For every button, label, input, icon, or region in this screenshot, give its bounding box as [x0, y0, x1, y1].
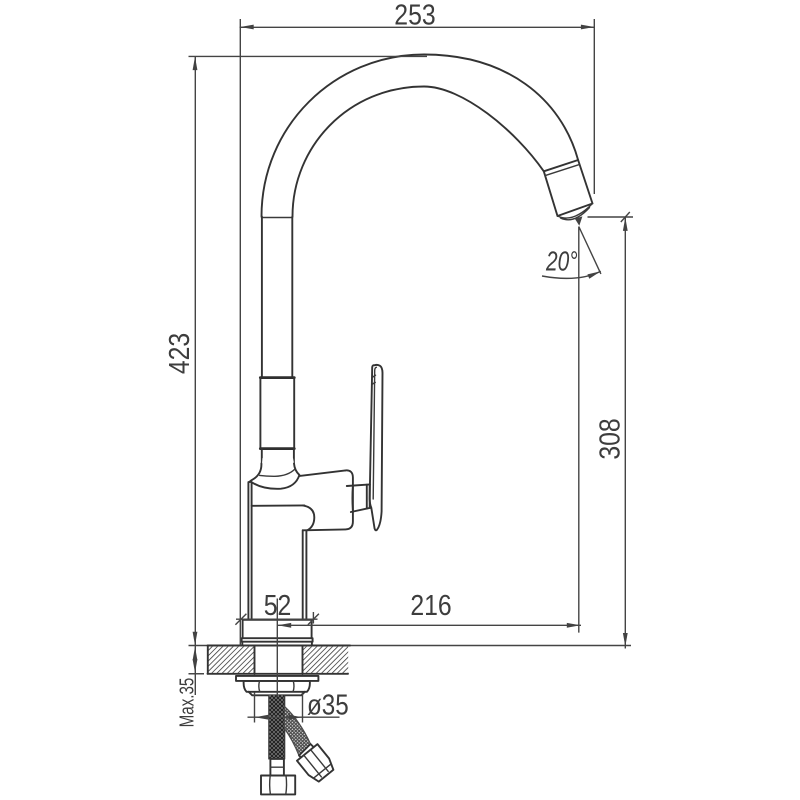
svg-text:20°: 20° — [545, 247, 578, 277]
svg-text:216: 216 — [410, 589, 451, 621]
svg-text:423: 423 — [163, 333, 195, 374]
svg-text:253: 253 — [394, 0, 435, 31]
svg-text:Max.35: Max.35 — [175, 678, 198, 728]
svg-text:308: 308 — [594, 418, 626, 459]
svg-text:ø35: ø35 — [307, 689, 349, 721]
